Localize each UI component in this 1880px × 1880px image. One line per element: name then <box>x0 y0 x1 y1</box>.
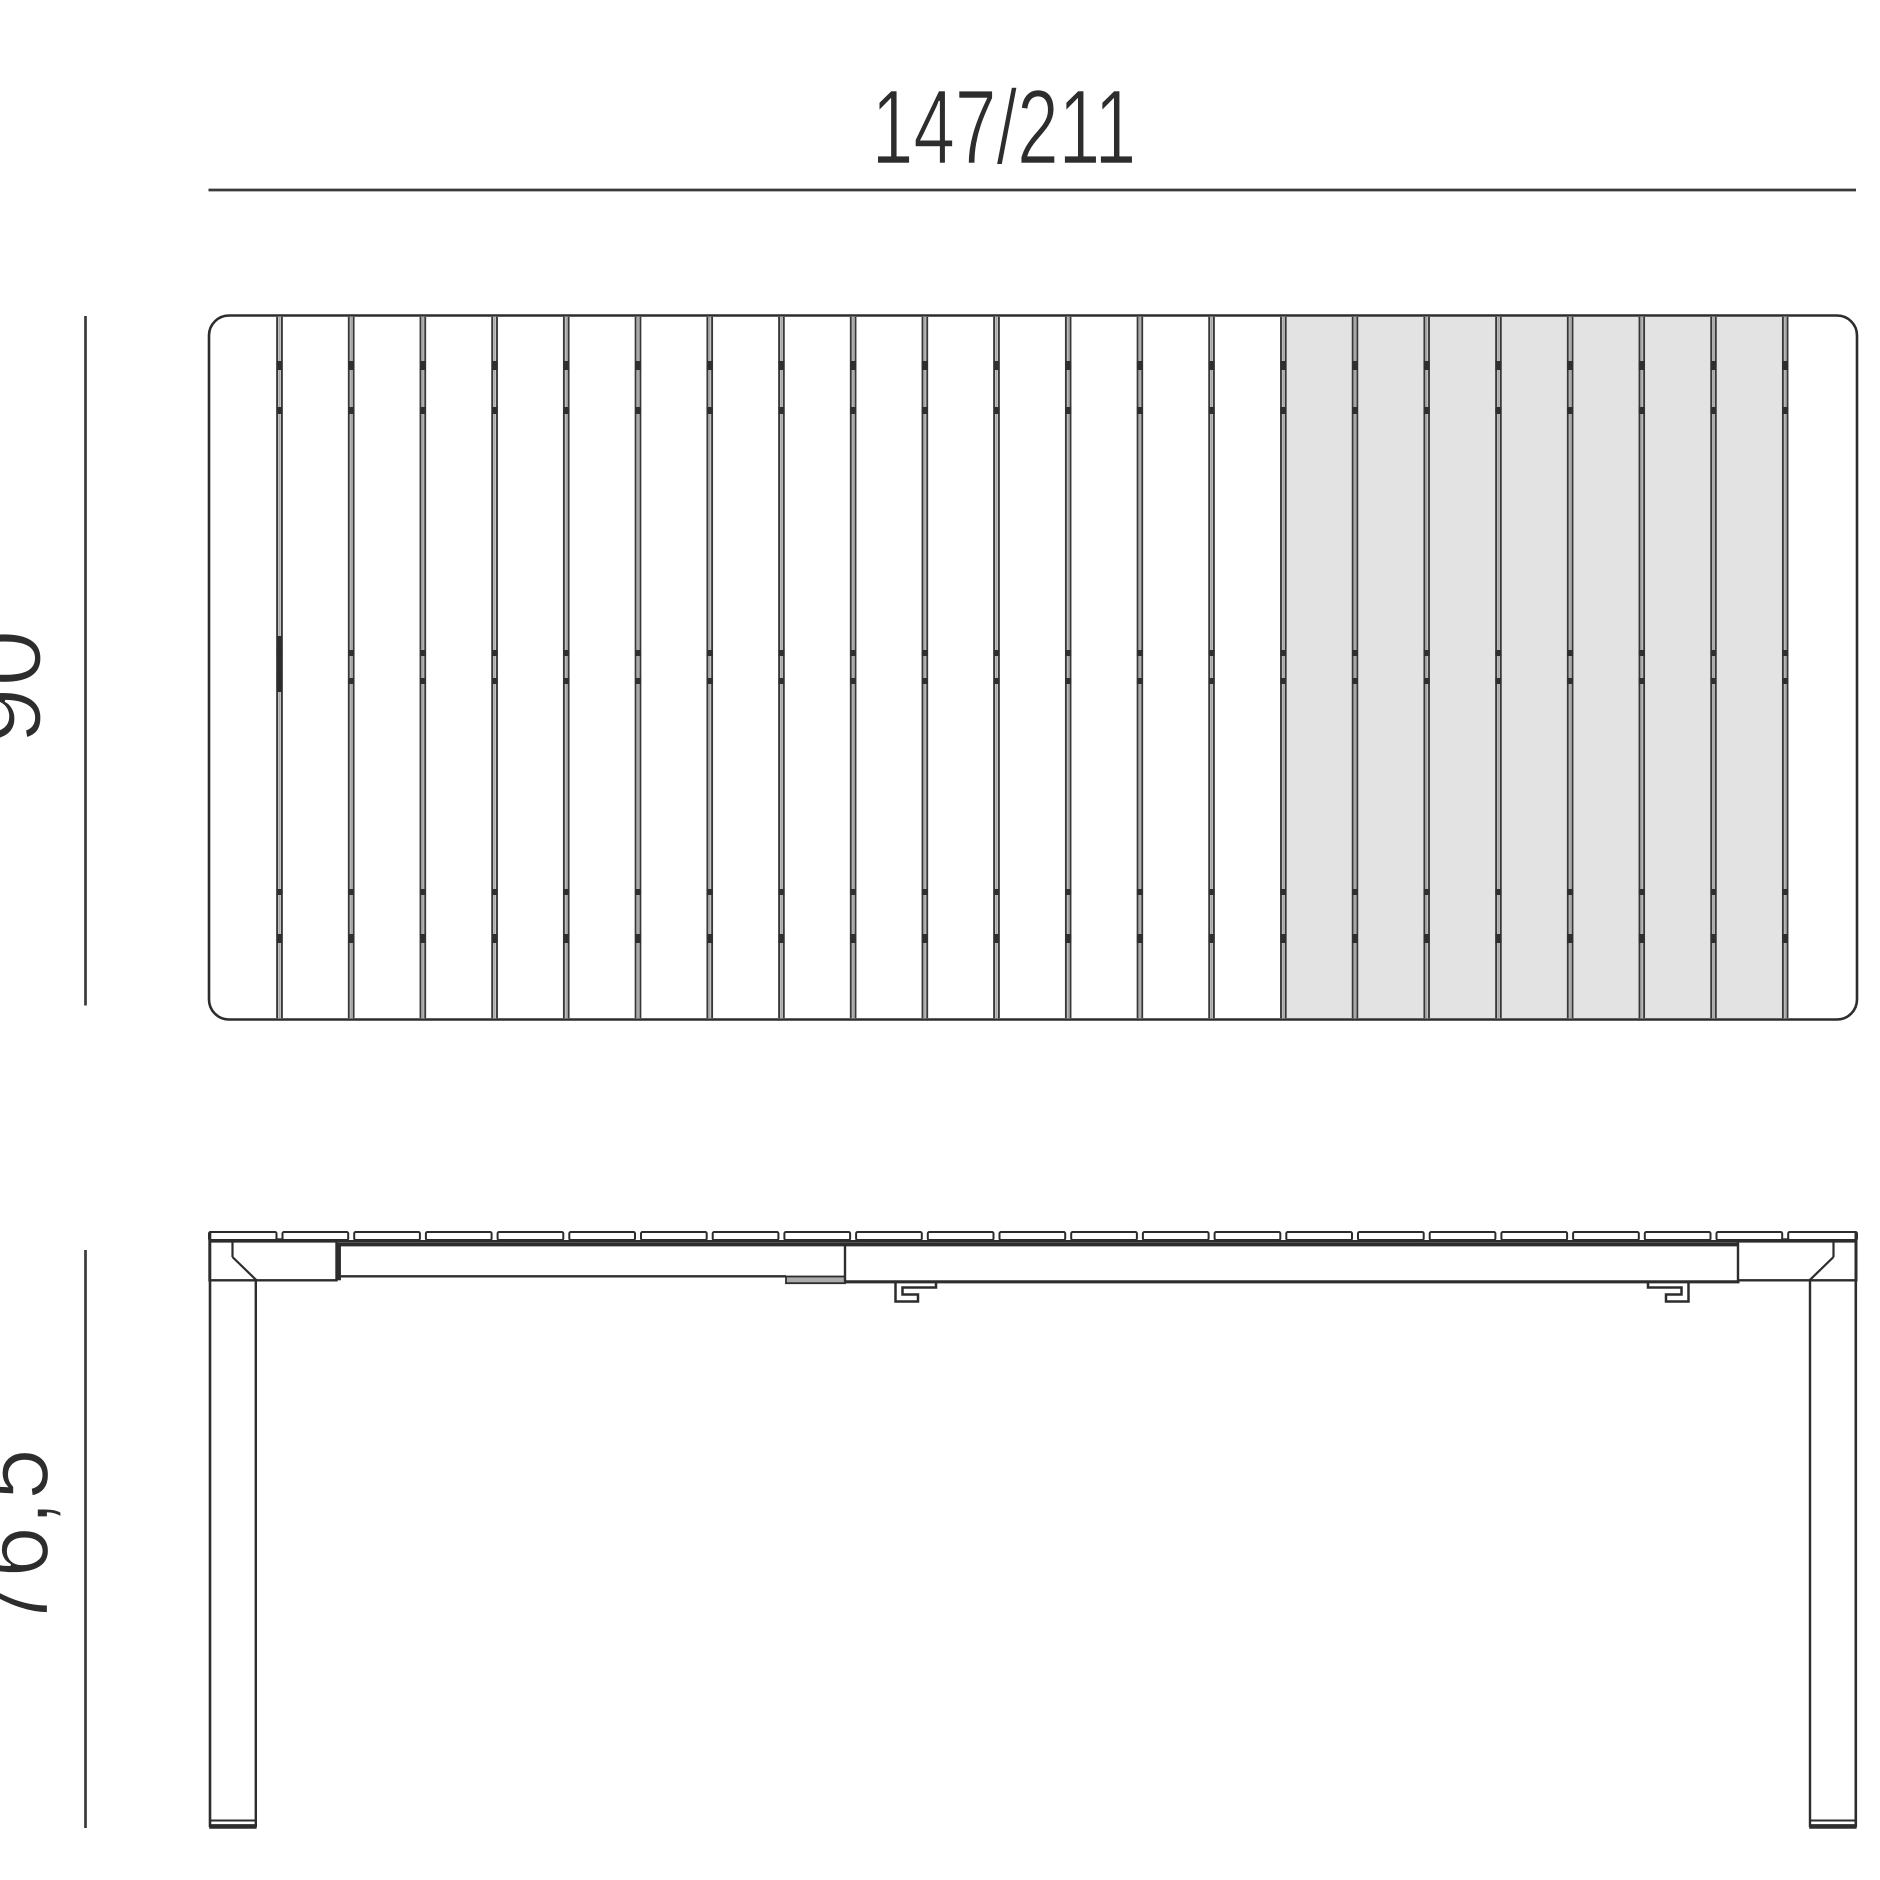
svg-text:90: 90 <box>0 629 64 745</box>
svg-text:76,5: 76,5 <box>0 1448 71 1629</box>
svg-text:147/211: 147/211 <box>872 69 1136 187</box>
